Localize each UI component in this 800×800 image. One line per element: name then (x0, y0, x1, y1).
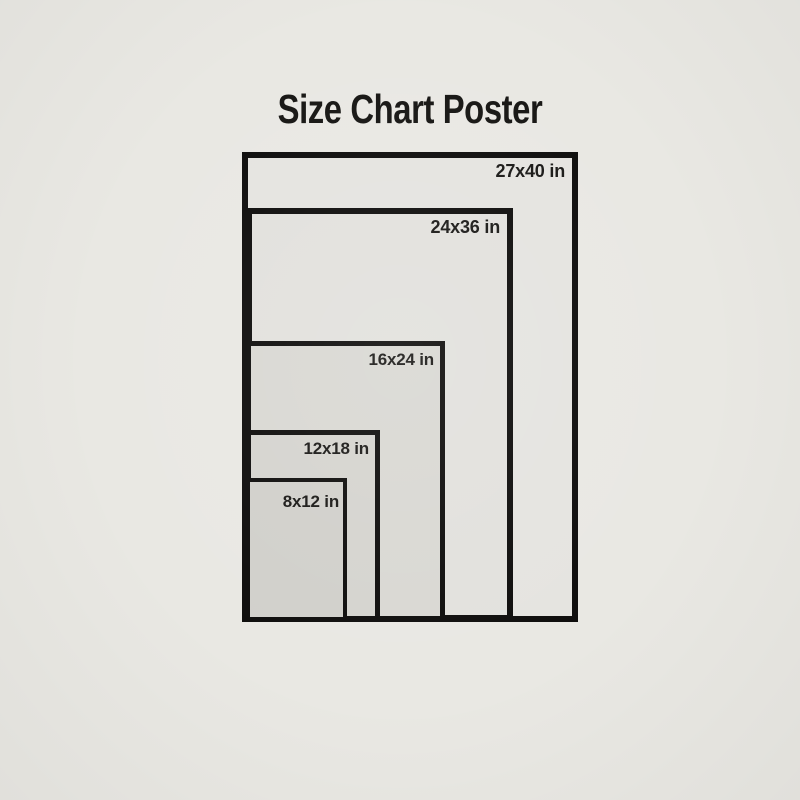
size-label-24x36: 24x36 in (431, 217, 500, 238)
size-label-27x40: 27x40 in (496, 161, 565, 182)
size-label-12x18: 12x18 in (303, 439, 369, 459)
size-chart-canvas: Size Chart Poster 27x40 in 24x36 in 16x2… (0, 0, 800, 800)
size-rect-8x12: 8x12 in (246, 478, 347, 621)
size-label-8x12: 8x12 in (283, 492, 339, 512)
size-label-16x24: 16x24 in (368, 350, 434, 370)
page-title: Size Chart Poster (250, 86, 570, 133)
